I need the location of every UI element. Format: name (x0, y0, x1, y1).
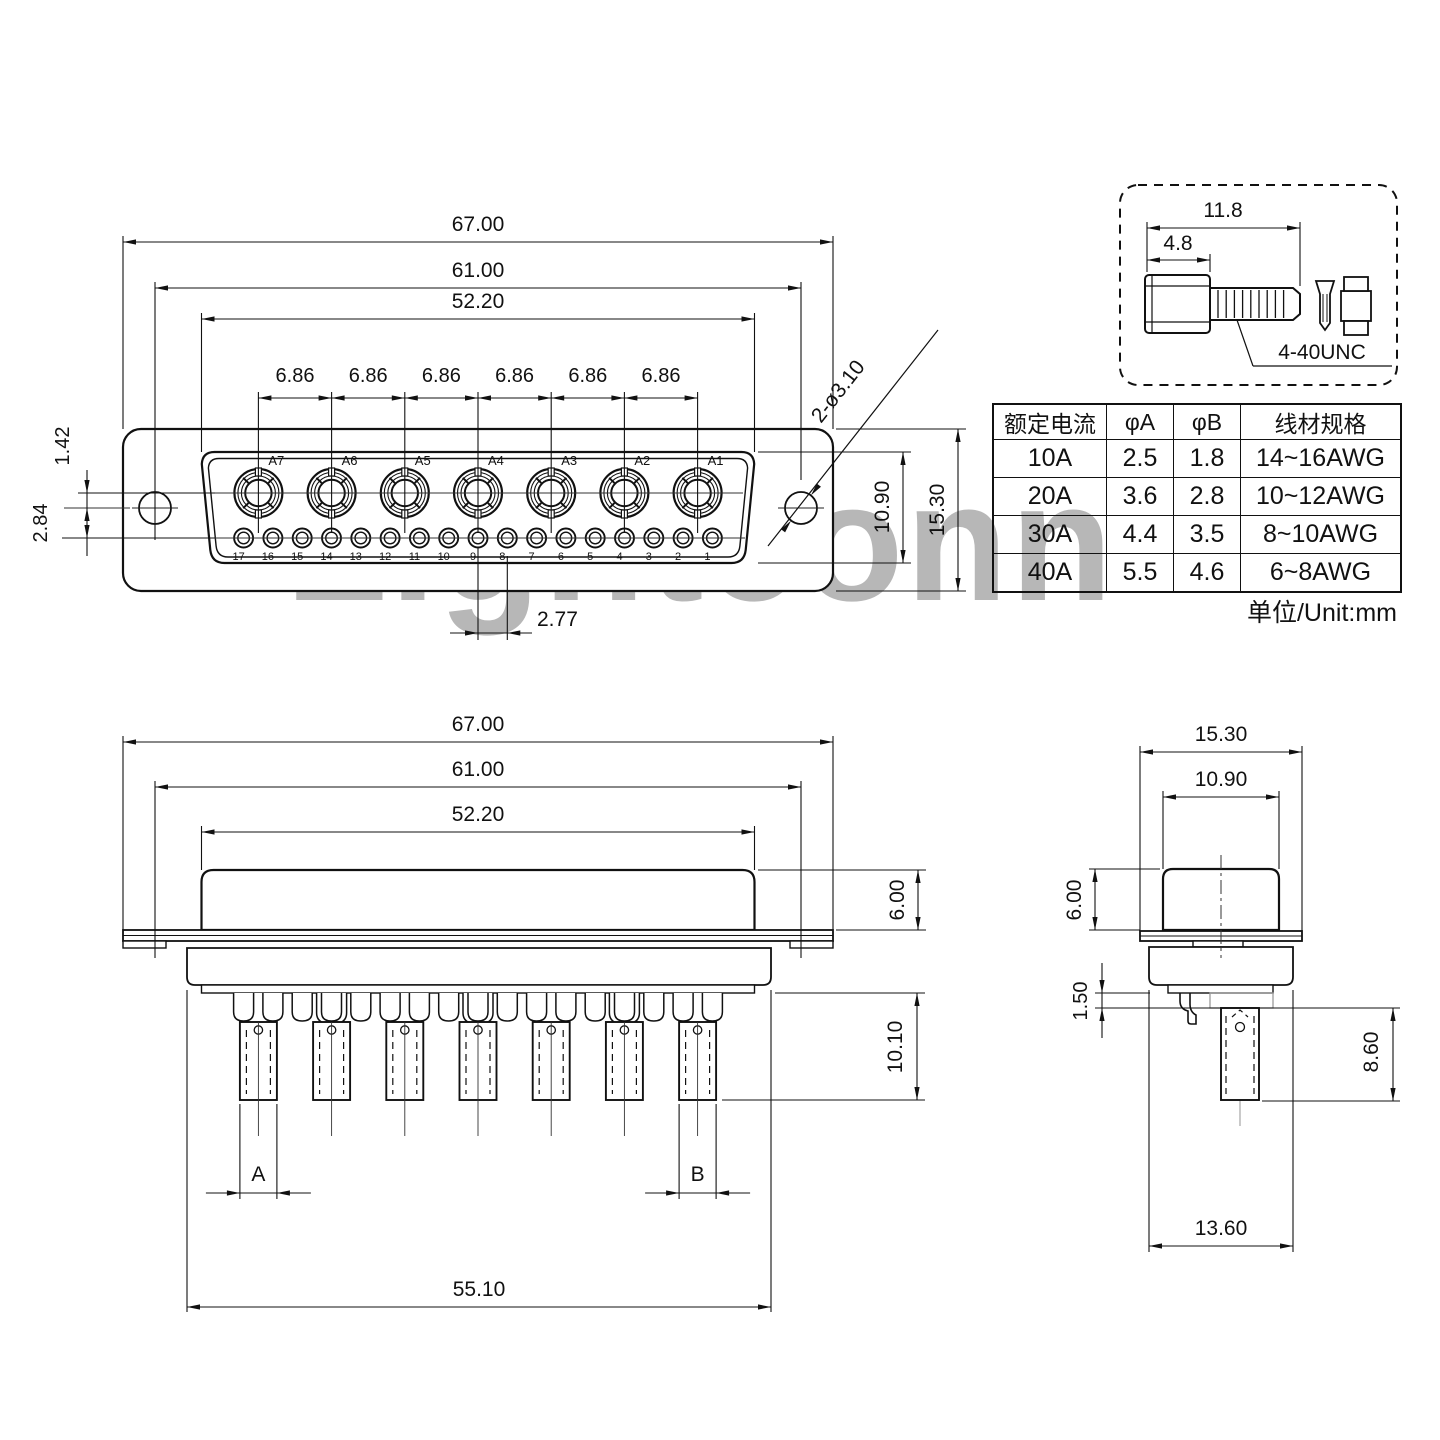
dimension-arrow (1092, 869, 1097, 882)
dimension-arrow (624, 395, 637, 400)
spec-table-header-row: 额定电流φAφB线材规格 (993, 404, 1401, 440)
pin-label: 13 (350, 551, 362, 563)
dimension-arrow (202, 829, 215, 834)
dimension-arrow (405, 395, 418, 400)
pin-tail (644, 993, 664, 1021)
pin-label: 12 (379, 551, 391, 563)
spec-table-cell: 1.8 (1174, 440, 1241, 478)
drawing-sheet: LightconnA7A6A5A4A3A2A117161514131211109… (0, 0, 1440, 1440)
bottom-shell (202, 870, 755, 930)
dimension-arrow (955, 429, 960, 442)
solder-cup (460, 1022, 497, 1136)
dimension-arrow (1390, 1088, 1395, 1101)
dimension-arrow (478, 395, 491, 400)
pin-tail (702, 993, 722, 1021)
dimension-label: 52.20 (452, 290, 505, 313)
pin-tail (615, 993, 635, 1021)
pin-label: 11 (409, 551, 420, 563)
callout-label: 2-ø3.10 (807, 356, 870, 427)
spec-table-row: 30A4.43.58~10AWG (993, 516, 1401, 554)
dimension-label: 61.00 (452, 758, 505, 781)
dimension-label: 6.86 (349, 365, 388, 387)
spec-table-cell: 2.5 (1107, 440, 1174, 478)
dimension-arrow (1147, 225, 1160, 230)
dimension-arrow (1099, 1008, 1104, 1021)
pin-label: 17 (232, 551, 244, 563)
spec-table-cell: 2.8 (1174, 478, 1241, 516)
dimension-arrow (1287, 225, 1300, 230)
leader-line (1237, 320, 1253, 366)
solder-cup (240, 1022, 277, 1136)
dimension-label: 52.20 (452, 803, 505, 826)
screw-head (1145, 275, 1210, 333)
bottom-view (123, 870, 833, 1136)
pin-tail (585, 993, 605, 1021)
spec-table-row: 40A5.54.66~8AWG (993, 554, 1401, 593)
body-lip (202, 985, 755, 993)
dimension-label: B (691, 1163, 705, 1186)
insulator-edge (1210, 993, 1273, 1008)
spec-table-cell: 30A (993, 516, 1107, 554)
dimension-arrow (1092, 917, 1097, 930)
pin-label: 9 (470, 551, 476, 563)
sleeve-cap (1344, 321, 1368, 335)
pin-tail (409, 993, 429, 1021)
dimension-label: 2.84 (30, 504, 52, 543)
dimension-arrow (392, 395, 405, 400)
pin-tail (322, 993, 342, 1021)
dimension-arrow (155, 784, 168, 789)
pin-tail (292, 993, 312, 1021)
front-view: A7A6A5A4A3A2A11716151413121110987654321 (64, 429, 833, 591)
dimension-arrow (788, 784, 801, 789)
spec-table-row: 20A3.62.810~12AWG (993, 478, 1401, 516)
pin-label: 2 (675, 551, 681, 563)
pin-tail (263, 993, 283, 1021)
screw-detail: 11.84.84-40UNC (1120, 185, 1397, 385)
dimension-label: 6.00 (886, 880, 909, 921)
spec-table-cell: 6~8AWG (1241, 554, 1402, 593)
dimension-arrow (758, 1304, 771, 1309)
dimension-arrow (820, 739, 833, 744)
spec-table-cell: 3.6 (1107, 478, 1174, 516)
dimension-arrow (716, 1190, 729, 1195)
spec-table-cell: 8~10AWG (1241, 516, 1402, 554)
body-lip (1168, 985, 1273, 993)
coax-label: A4 (488, 453, 504, 468)
dimension-label: 10.90 (1195, 768, 1248, 791)
dimension-arrow (277, 1190, 290, 1195)
dimension-label: A (251, 1163, 265, 1186)
spec-table-cell: 4.4 (1107, 516, 1174, 554)
pin-label: 3 (646, 551, 652, 563)
sleeve-mid (1341, 291, 1371, 321)
dimension-label: 61.00 (452, 259, 505, 282)
coax-label: A6 (342, 453, 358, 468)
spec-table-cell: 14~16AWG (1241, 440, 1402, 478)
screw-shaft (1210, 288, 1300, 320)
spec-table-header: 额定电流 (993, 404, 1107, 440)
dimension-arrow (685, 395, 698, 400)
dimension-arrow (84, 525, 89, 538)
spec-table-header: φB (1174, 404, 1241, 440)
flange-tab (123, 941, 166, 948)
coax-label: A1 (708, 453, 724, 468)
dimension-arrow (1163, 794, 1176, 799)
dimension-label: 55.10 (453, 1278, 506, 1301)
spec-table-cell: 5.5 (1107, 554, 1174, 593)
technical-drawing: LightconnA7A6A5A4A3A2A117161514131211109… (0, 0, 1440, 1440)
dimension-arrow (1197, 257, 1210, 262)
spec-table-row: 10A2.51.814~16AWG (993, 440, 1401, 478)
dimension-arrow (1390, 1008, 1395, 1021)
pin-tail (439, 993, 459, 1021)
dimension-arrow (538, 395, 551, 400)
dimension-arrow (187, 1304, 200, 1309)
dimension-arrow (227, 1190, 240, 1195)
dimension-label: 6.86 (568, 365, 607, 387)
dimension-arrow (1147, 257, 1160, 262)
pin-label: 1 (704, 551, 710, 563)
dimension-arrow (914, 993, 919, 1006)
dimension-label: 6.86 (422, 365, 461, 387)
dimension-label: 15.30 (926, 484, 949, 537)
dimension-arrow (551, 395, 564, 400)
dimension-arrow (1289, 749, 1302, 754)
dimension-label: 1.50 (1070, 982, 1092, 1021)
side-body (1149, 947, 1293, 985)
dimension-arrow (123, 739, 136, 744)
spec-table-cell: 10A (993, 440, 1107, 478)
dimension-label: 6.00 (1063, 880, 1086, 921)
solder-cup (386, 1022, 423, 1136)
dimension-arrow (123, 239, 136, 244)
dimension-arrow (155, 285, 168, 290)
thread-label: 4-40UNC (1278, 341, 1366, 364)
solder-cup (679, 1022, 716, 1136)
solder-cup (606, 1022, 643, 1136)
side-view (1140, 855, 1302, 1126)
dimension-arrow (914, 1087, 919, 1100)
dimension-arrow (202, 316, 215, 321)
solder-cup (313, 1022, 350, 1136)
dimension-label: 6.86 (642, 365, 681, 387)
pin-label: 6 (558, 551, 564, 563)
dimension-arrow (611, 395, 624, 400)
pin-tail (673, 993, 693, 1021)
pin-tail (497, 993, 517, 1021)
pin-part (1316, 281, 1334, 330)
coax-label: A5 (415, 453, 431, 468)
dimension-label: 67.00 (452, 213, 505, 236)
pin-tail (234, 993, 254, 1021)
spec-table-header: 线材规格 (1241, 404, 1402, 440)
dimension-label: 15.30 (1195, 723, 1248, 746)
dimension-label: 13.60 (1195, 1217, 1248, 1240)
dimension-arrow (666, 1190, 679, 1195)
pin-tail (468, 993, 488, 1021)
dimension-arrow (465, 395, 478, 400)
spec-table-cell: 4.6 (1174, 554, 1241, 593)
coax-label: A7 (268, 453, 284, 468)
pin-tail (380, 993, 400, 1021)
cup-hole (1236, 1023, 1245, 1032)
dimension-label: 2.77 (537, 608, 578, 631)
dimension-arrow (1149, 1243, 1162, 1248)
spec-table-cell: 3.5 (1174, 516, 1241, 554)
spec-table-cell: 40A (993, 554, 1107, 593)
bottom-body (187, 948, 771, 985)
units-label: 单位/Unit:mm (1135, 593, 1397, 629)
dimension-arrow (788, 285, 801, 290)
dimension-arrow (1280, 1243, 1293, 1248)
dimension-label: 8.60 (1360, 1032, 1383, 1073)
dimension-arrow (742, 829, 755, 834)
dimension-label: 4.8 (1163, 232, 1192, 255)
coax-label: A2 (634, 453, 650, 468)
pin-label: 10 (438, 551, 450, 563)
spec-table-cell: 10~12AWG (1241, 478, 1402, 516)
dimension-label: 11.8 (1203, 199, 1242, 222)
dimension-label: 10.10 (884, 1021, 907, 1074)
dimension-arrow (1140, 749, 1153, 754)
dimension-label: 6.86 (276, 365, 315, 387)
pin-tail (527, 993, 547, 1021)
dimension-arrow (319, 395, 332, 400)
pin-tail (351, 993, 371, 1021)
dimension-label: 1.42 (52, 427, 74, 466)
pin-label: 5 (587, 551, 593, 563)
spec-table-header: φA (1107, 404, 1174, 440)
pin-label: 16 (262, 551, 274, 563)
dimension-arrow (915, 917, 920, 930)
coax-label: A3 (561, 453, 577, 468)
dimension-arrow (820, 239, 833, 244)
pin-label: 7 (529, 551, 535, 563)
dimension-label: 67.00 (452, 713, 505, 736)
flange-tab (790, 941, 833, 948)
pin-label: 15 (291, 551, 303, 563)
dimension-label: 10.90 (871, 481, 894, 534)
solder-cup (533, 1022, 570, 1136)
dimension-arrow (1266, 794, 1279, 799)
side-cup (1221, 1008, 1259, 1100)
spec-table-cell: 20A (993, 478, 1107, 516)
dimension-arrow (742, 316, 755, 321)
dimension-arrow (915, 870, 920, 883)
spec-table: 额定电流φAφB线材规格10A2.51.814~16AWG20A3.62.810… (992, 403, 1402, 593)
pin-tail (556, 993, 576, 1021)
pin-label: 14 (320, 551, 332, 563)
pin-label: 8 (499, 551, 505, 563)
dimension-arrow (84, 480, 89, 493)
sleeve-cap (1344, 277, 1368, 291)
dimension-arrow (332, 395, 345, 400)
pin-label: 4 (616, 551, 622, 563)
dimension-label: 6.86 (495, 365, 534, 387)
dimension-arrow (1099, 980, 1104, 993)
dimension-arrow (84, 508, 89, 521)
dimension-arrow (258, 395, 271, 400)
